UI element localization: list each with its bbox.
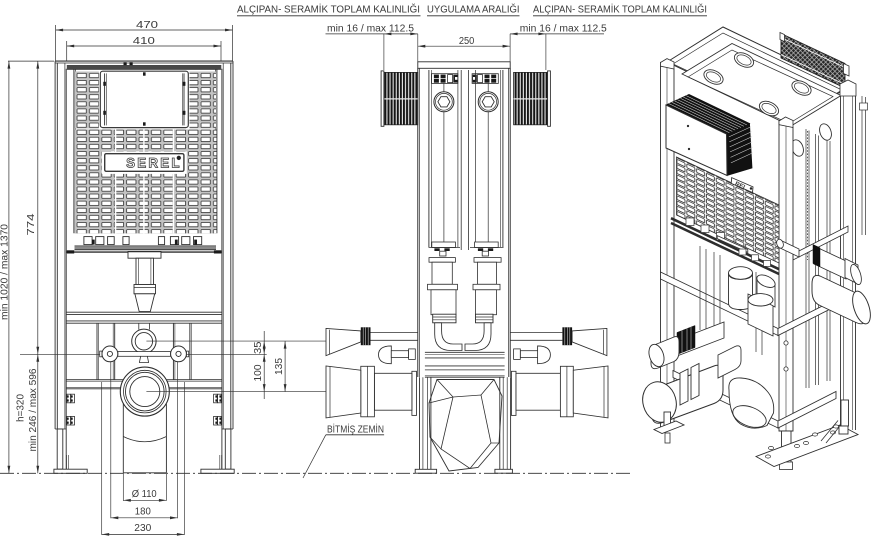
svg-text:230: 230	[134, 523, 152, 534]
svg-text:BİTMİŞ ZEMİN: BİTMİŞ ZEMİN	[327, 422, 384, 435]
svg-text:ALÇIPAN- SERAMİK TOPLAM KALINL: ALÇIPAN- SERAMİK TOPLAM KALINLIĞI	[533, 2, 707, 15]
svg-text:ALÇIPAN- SERAMİK TOPLAM KALINL: ALÇIPAN- SERAMİK TOPLAM KALINLIĞI	[237, 2, 420, 15]
svg-text:774: 774	[26, 213, 37, 236]
svg-text:Ø 110: Ø 110	[132, 489, 158, 500]
svg-text:410: 410	[133, 36, 156, 47]
svg-text:SEREL: SEREL	[126, 155, 182, 170]
svg-text:min 246 / max 596: min 246 / max 596	[28, 368, 39, 452]
svg-text:100: 100	[253, 364, 264, 382]
svg-text:135: 135	[274, 357, 285, 375]
svg-text:min 16 / max 112.5: min 16 / max 112.5	[327, 24, 414, 35]
svg-text:470: 470	[136, 20, 159, 31]
svg-text:180: 180	[135, 506, 152, 517]
svg-text:min 16 / max 112.5: min 16 / max 112.5	[520, 24, 607, 35]
svg-text:UYGULAMA ARALIĞI: UYGULAMA ARALIĞI	[427, 2, 520, 15]
svg-text:250: 250	[459, 36, 475, 47]
svg-text:35: 35	[253, 341, 264, 354]
svg-text:h=320: h=320	[16, 393, 27, 422]
svg-text:min 1020 / max 1370: min 1020 / max 1370	[0, 223, 10, 320]
